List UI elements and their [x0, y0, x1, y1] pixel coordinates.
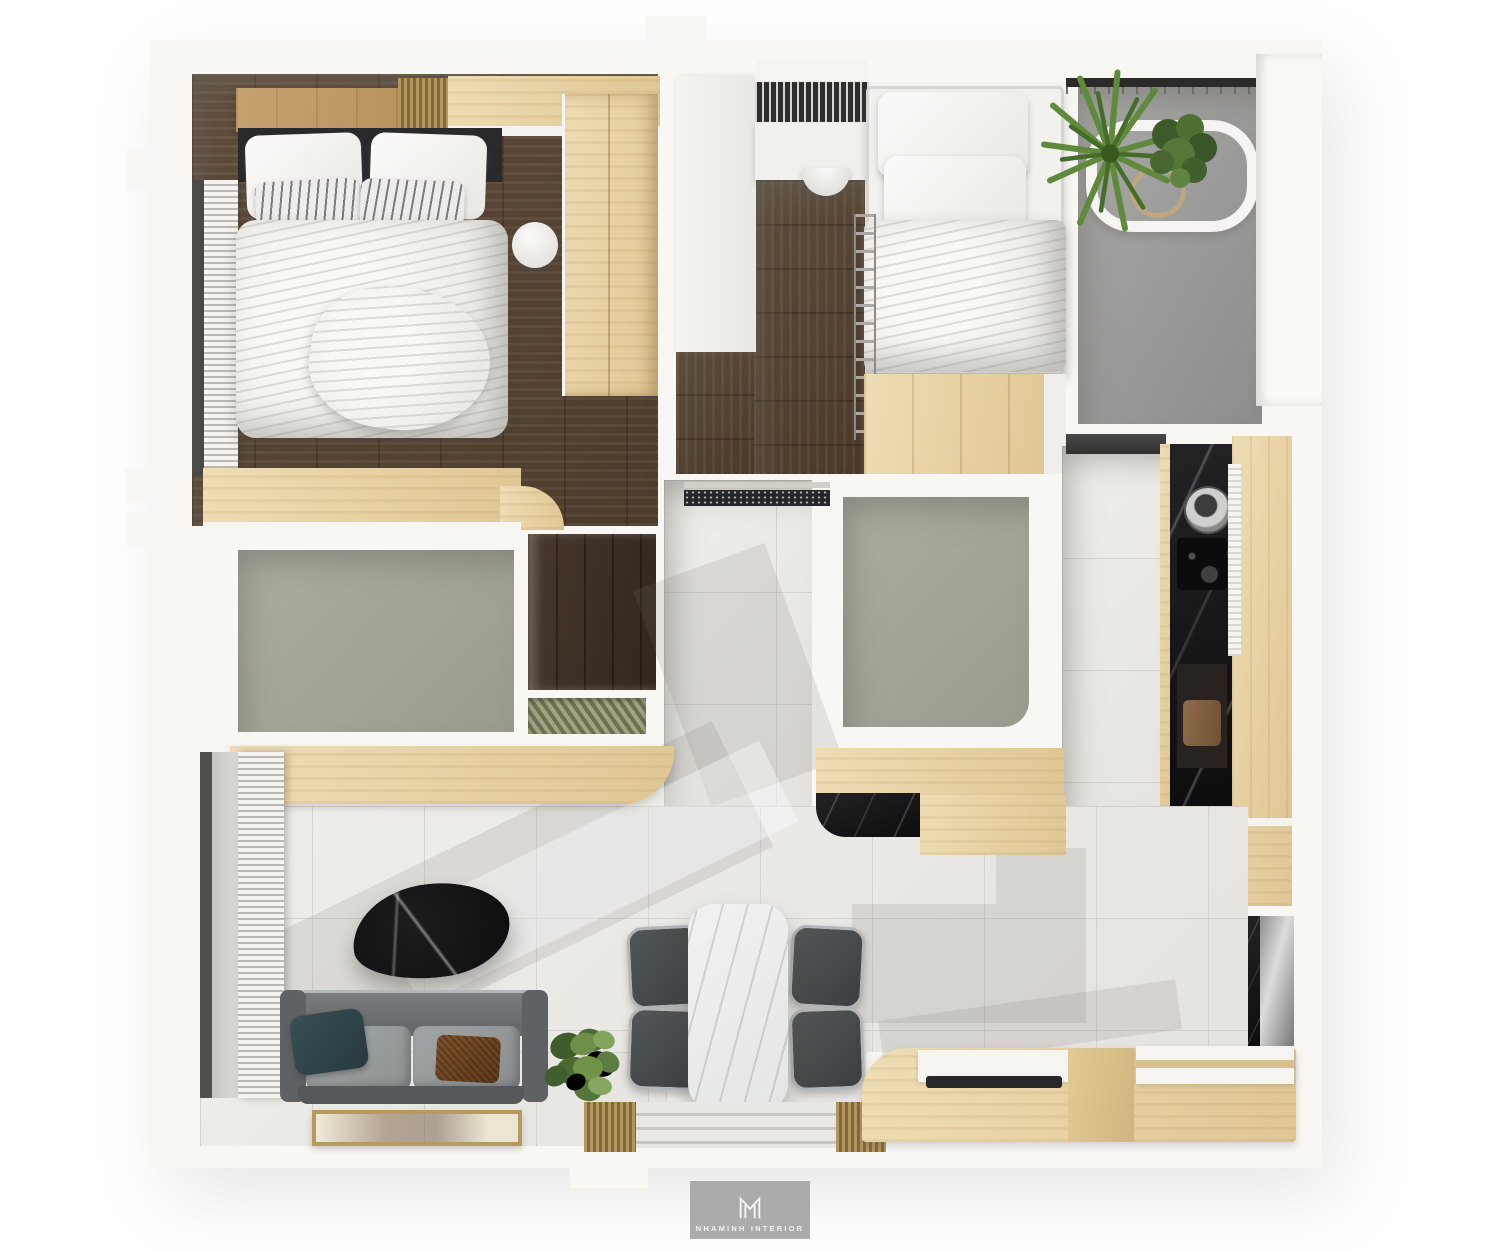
second-bedroom-floor: [753, 180, 865, 474]
bathroom-middle-floor: [843, 497, 1029, 727]
fridge-mirror-front: [1260, 916, 1294, 1058]
second-bedroom-desk: [676, 76, 756, 352]
master-window-blinds: [204, 180, 238, 476]
master-window-glass: [192, 180, 204, 476]
shrub-plant: [1138, 100, 1228, 200]
slatted-wood-panel: [398, 78, 448, 132]
master-pouf: [512, 222, 558, 268]
threshold-door-track: [636, 1102, 836, 1148]
master-wardrobe-seam: [608, 94, 610, 396]
living-window-glass: [200, 752, 212, 1098]
kitchen-floor: [1062, 446, 1168, 840]
bed-platform: [864, 374, 1044, 474]
logo-studio-name: NHAMINH INTERIOR: [696, 1224, 805, 1233]
dining-plant: [560, 1018, 626, 1104]
balcony-side-column: [1256, 54, 1322, 406]
kitchen-tall-cabinets: [1232, 436, 1292, 820]
closet-dark-interior: [528, 534, 656, 690]
bathroom-left-floor: [238, 550, 514, 732]
master-corner-counter: [203, 468, 521, 526]
wardrobe-shelf: [755, 60, 869, 82]
wall-tab-bottom: [570, 1162, 648, 1188]
dining-chair-3: [788, 924, 866, 1010]
bench-slot: [926, 1076, 1062, 1088]
bench-divider: [1068, 1048, 1134, 1142]
living-window-blinds: [238, 752, 284, 1098]
tv-console: [230, 746, 674, 804]
range-hood: [1066, 434, 1166, 454]
living-window-wall: [212, 752, 238, 1098]
bench-top-right-wood-strip: [1136, 1060, 1294, 1068]
closet-slatted-niche: [528, 698, 646, 734]
bath-middle-marble-corner: [816, 793, 924, 837]
framed-artwork-mat: [312, 1110, 522, 1146]
kitchen-sink: [1186, 488, 1230, 532]
sofa-front: [298, 1086, 524, 1104]
second-bedroom-floor-left: [676, 350, 754, 474]
sofa-cushion-brown: [435, 1034, 501, 1083]
sofa-cushion-teal: [288, 1007, 370, 1077]
logo-monogram-icon: [735, 1194, 765, 1222]
single-bed-pillow-bottom: [884, 156, 1026, 230]
cutting-board: [1183, 700, 1221, 746]
studio-logo: NHAMINH INTERIOR: [690, 1181, 810, 1239]
bath-middle-cabinet: [816, 748, 1064, 796]
dining-table: [688, 904, 788, 1110]
wall-tab-left-3: [126, 512, 154, 546]
dining-chair-4: [789, 1007, 866, 1092]
entry-door: [684, 482, 830, 488]
floor-plan-render: NHAMINH INTERIOR: [0, 0, 1500, 1250]
bath-middle-cabinet-step: [920, 793, 1066, 855]
fridge-marble-edge: [1246, 916, 1260, 1058]
kitchen-cooktop: [1177, 538, 1227, 590]
wall-tab-left-1: [126, 150, 154, 190]
wall-tab-left-2: [126, 468, 154, 502]
kitchen-white-panel: [1228, 464, 1241, 656]
master-wardrobe: [562, 94, 658, 396]
entry-doormat: [684, 490, 830, 506]
wall-tab-top: [645, 16, 707, 46]
threshold-slats-left: [584, 1102, 636, 1152]
wardrobe-hanging-rail: [755, 82, 869, 122]
master-counter-edge: [203, 522, 521, 530]
